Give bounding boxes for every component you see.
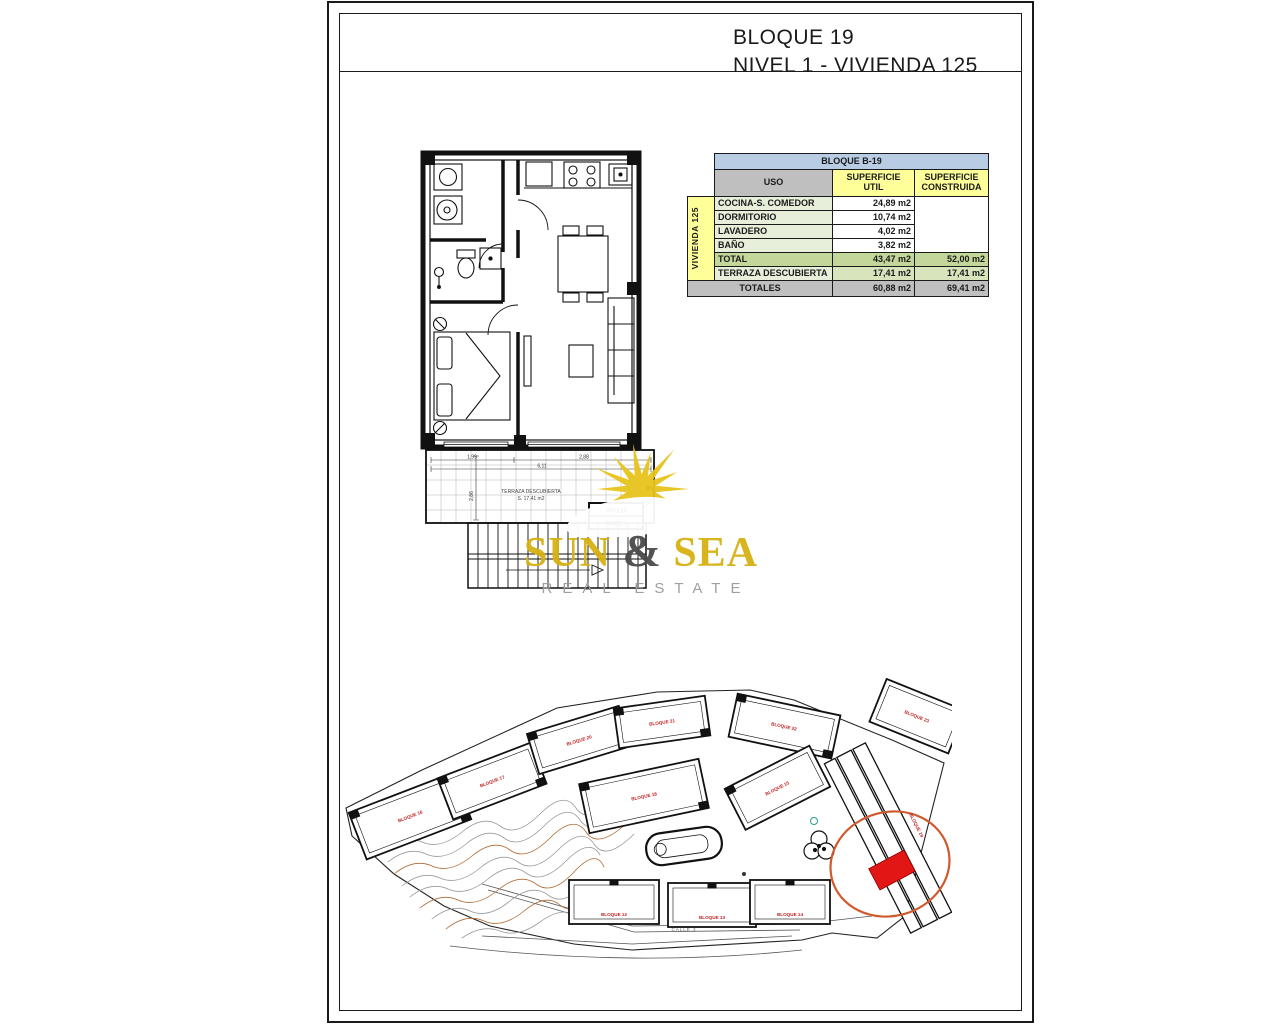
table-corner-spacer xyxy=(688,154,715,170)
living-room-furniture xyxy=(524,298,634,403)
site-plan-drawing: BLOQUE 16 BLOQUE 17 BLOQUE 20 xyxy=(332,678,952,968)
table-corner-spacer xyxy=(688,170,715,197)
building-block: BLOQUE 23 xyxy=(869,679,952,753)
brand-sea-text: SEA xyxy=(673,530,758,576)
plan-sheet-page: BLOQUE 19 NIVEL 1 - VIVIENDA 125 BLOQUE … xyxy=(0,0,1280,1024)
title-line-1: BLOQUE 19 xyxy=(733,24,978,52)
laundry-fixtures xyxy=(434,164,462,224)
title-line-2: NIVEL 1 - VIVIENDA 125 xyxy=(733,52,978,80)
title-block: BLOQUE 19 NIVEL 1 - VIVIENDA 125 xyxy=(733,24,978,81)
row-value: 4,02 m2 xyxy=(833,225,915,239)
brand-ampersand: & xyxy=(623,525,662,576)
totals-row: TOTALES 60,88 m2 69,41 m2 xyxy=(688,281,989,297)
building-block: BLOQUE 22 xyxy=(729,694,841,759)
watermark: SUN & SEA REAL ESTATE xyxy=(490,437,792,597)
block-label: BLOQUE 13 xyxy=(699,915,725,920)
group-label-cell: VIVIENDA 125 xyxy=(688,197,715,281)
table-block-header: BLOQUE B-19 xyxy=(715,154,989,170)
terrace-label: TERRAZA DESCUBIERTA xyxy=(715,267,833,281)
building-block: BLOQUE 13 xyxy=(668,883,756,927)
title-separator xyxy=(340,71,1021,72)
apartment-walls xyxy=(423,153,639,447)
watermark-brand: SUN & SEA xyxy=(490,528,792,574)
brand-sun-text: SUN xyxy=(524,530,611,576)
sun-logo-icon xyxy=(566,437,716,537)
dining-table xyxy=(558,226,608,302)
dim-left-label: 1,99 xyxy=(467,455,477,461)
building-block: BLOQUE 12 xyxy=(569,880,659,924)
total-label: TOTAL xyxy=(715,253,833,267)
row-value: 3,82 m2 xyxy=(833,239,915,253)
building-block: BLOQUE 17 xyxy=(437,743,546,820)
dim-vertical-label: 2,86 xyxy=(469,491,475,501)
street-label: CALLE 3 xyxy=(671,927,696,932)
terrace-util: 17,41 m2 xyxy=(833,267,915,281)
row-label: BAÑO xyxy=(715,239,833,253)
totals-construida: 69,41 m2 xyxy=(915,281,989,297)
totals-label: TOTALES xyxy=(688,281,833,297)
col-header-uso: USO xyxy=(715,170,833,197)
building-block: BLOQUE 14 xyxy=(750,880,830,924)
row-label: DORMITORIO xyxy=(715,211,833,225)
building-block: BLOQUE 21 xyxy=(614,696,711,748)
block-label: BLOQUE 12 xyxy=(601,912,627,917)
total-util: 43,47 m2 xyxy=(833,253,915,267)
row-value: 24,89 m2 xyxy=(833,197,915,211)
swimming-pool xyxy=(644,825,724,867)
total-construida: 52,00 m2 xyxy=(915,253,989,267)
building-block: BLOQUE 18 xyxy=(579,759,709,833)
row-label: COCINA-S. COMEDOR xyxy=(715,197,833,211)
bedroom-furniture xyxy=(434,318,511,435)
table-row: VIVIENDA 125 COCINA-S. COMEDOR 24,89 m2 xyxy=(688,197,989,211)
construida-empty-cell xyxy=(915,197,989,253)
terrace-row: TERRAZA DESCUBIERTA 17,41 m2 17,41 m2 xyxy=(688,267,989,281)
door-arcs xyxy=(479,200,548,335)
row-value: 10,74 m2 xyxy=(833,211,915,225)
block-label: BLOQUE 14 xyxy=(777,912,803,917)
building-block-19 xyxy=(824,743,951,933)
kitchen-fixtures xyxy=(524,162,632,188)
total-row: TOTAL 43,47 m2 52,00 m2 xyxy=(688,253,989,267)
row-label: LAVADERO xyxy=(715,225,833,239)
watermark-tagline: REAL ESTATE xyxy=(490,580,792,597)
totals-util: 60,88 m2 xyxy=(833,281,915,297)
bathroom-fixtures xyxy=(435,248,502,288)
building-blocks: BLOQUE 16 BLOQUE 17 BLOQUE 20 xyxy=(349,679,952,933)
group-label: VIVIENDA 125 xyxy=(691,207,711,269)
col-header-construida: SUPERFICIE CONSTRUIDA xyxy=(915,170,989,197)
col-header-util: SUPERFICIE UTIL xyxy=(833,170,915,197)
areas-table: BLOQUE B-19 USO SUPERFICIE UTIL SUPERFIC… xyxy=(687,153,989,297)
sheet-outer-frame: BLOQUE 19 NIVEL 1 - VIVIENDA 125 BLOQUE … xyxy=(327,1,1034,1023)
terrace-construida: 17,41 m2 xyxy=(915,267,989,281)
interior-walls xyxy=(430,160,518,440)
sheet-inner-frame: BLOQUE 19 NIVEL 1 - VIVIENDA 125 BLOQUE … xyxy=(339,13,1022,1011)
play-area xyxy=(804,831,834,859)
